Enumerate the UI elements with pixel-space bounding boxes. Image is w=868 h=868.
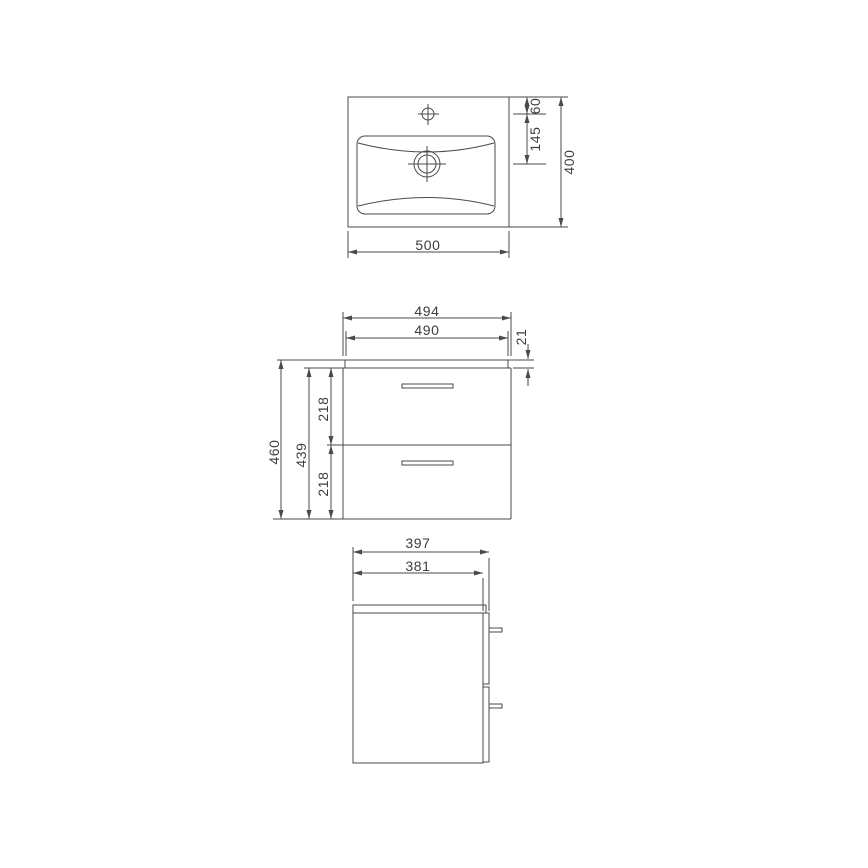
lower-drawer-handle xyxy=(402,461,453,465)
cabinet-body-side xyxy=(353,613,483,763)
upper-drawer-front-side xyxy=(483,613,489,684)
dim-worktop-thickness xyxy=(513,344,534,386)
washbasin-top-view xyxy=(348,97,568,258)
dim-label-upper-drawer-height: 218 xyxy=(316,396,330,421)
lower-handle-side xyxy=(489,704,502,708)
technical-drawing-page: 500 400 60 145 494 490 21 460 439 218 21… xyxy=(0,0,868,868)
dim-label-overall-depth: 397 xyxy=(405,536,430,550)
dim-label-basin-depth: 400 xyxy=(562,149,576,174)
cabinet-front-view xyxy=(273,312,534,519)
dim-label-lower-drawer-height: 218 xyxy=(316,471,330,496)
tap-hole xyxy=(418,104,439,125)
dim-label-tap-to-drain: 145 xyxy=(528,126,542,151)
dim-label-worktop-thickness: 21 xyxy=(514,329,528,346)
dim-label-carcass-depth: 381 xyxy=(405,559,430,573)
cabinet-side-view xyxy=(353,547,502,763)
dim-label-basin-width: 500 xyxy=(415,238,440,252)
drawing-linework xyxy=(0,0,868,868)
dim-overall-depth xyxy=(353,547,489,611)
dim-label-carcass-height: 439 xyxy=(294,442,308,467)
basin-bowl xyxy=(357,136,495,214)
worktop-side xyxy=(353,605,486,613)
dim-label-carcass-width: 490 xyxy=(414,323,439,337)
dim-label-overall-width: 494 xyxy=(414,304,439,318)
dim-label-overall-height: 460 xyxy=(267,439,281,464)
dim-label-tap-offset: 60 xyxy=(528,98,542,115)
upper-handle-side xyxy=(489,628,502,632)
dim-basin-depth xyxy=(509,97,568,227)
worktop-front xyxy=(277,360,534,368)
upper-drawer-handle xyxy=(402,384,453,388)
lower-drawer-front-side xyxy=(483,687,489,762)
drawing-root xyxy=(273,97,568,763)
